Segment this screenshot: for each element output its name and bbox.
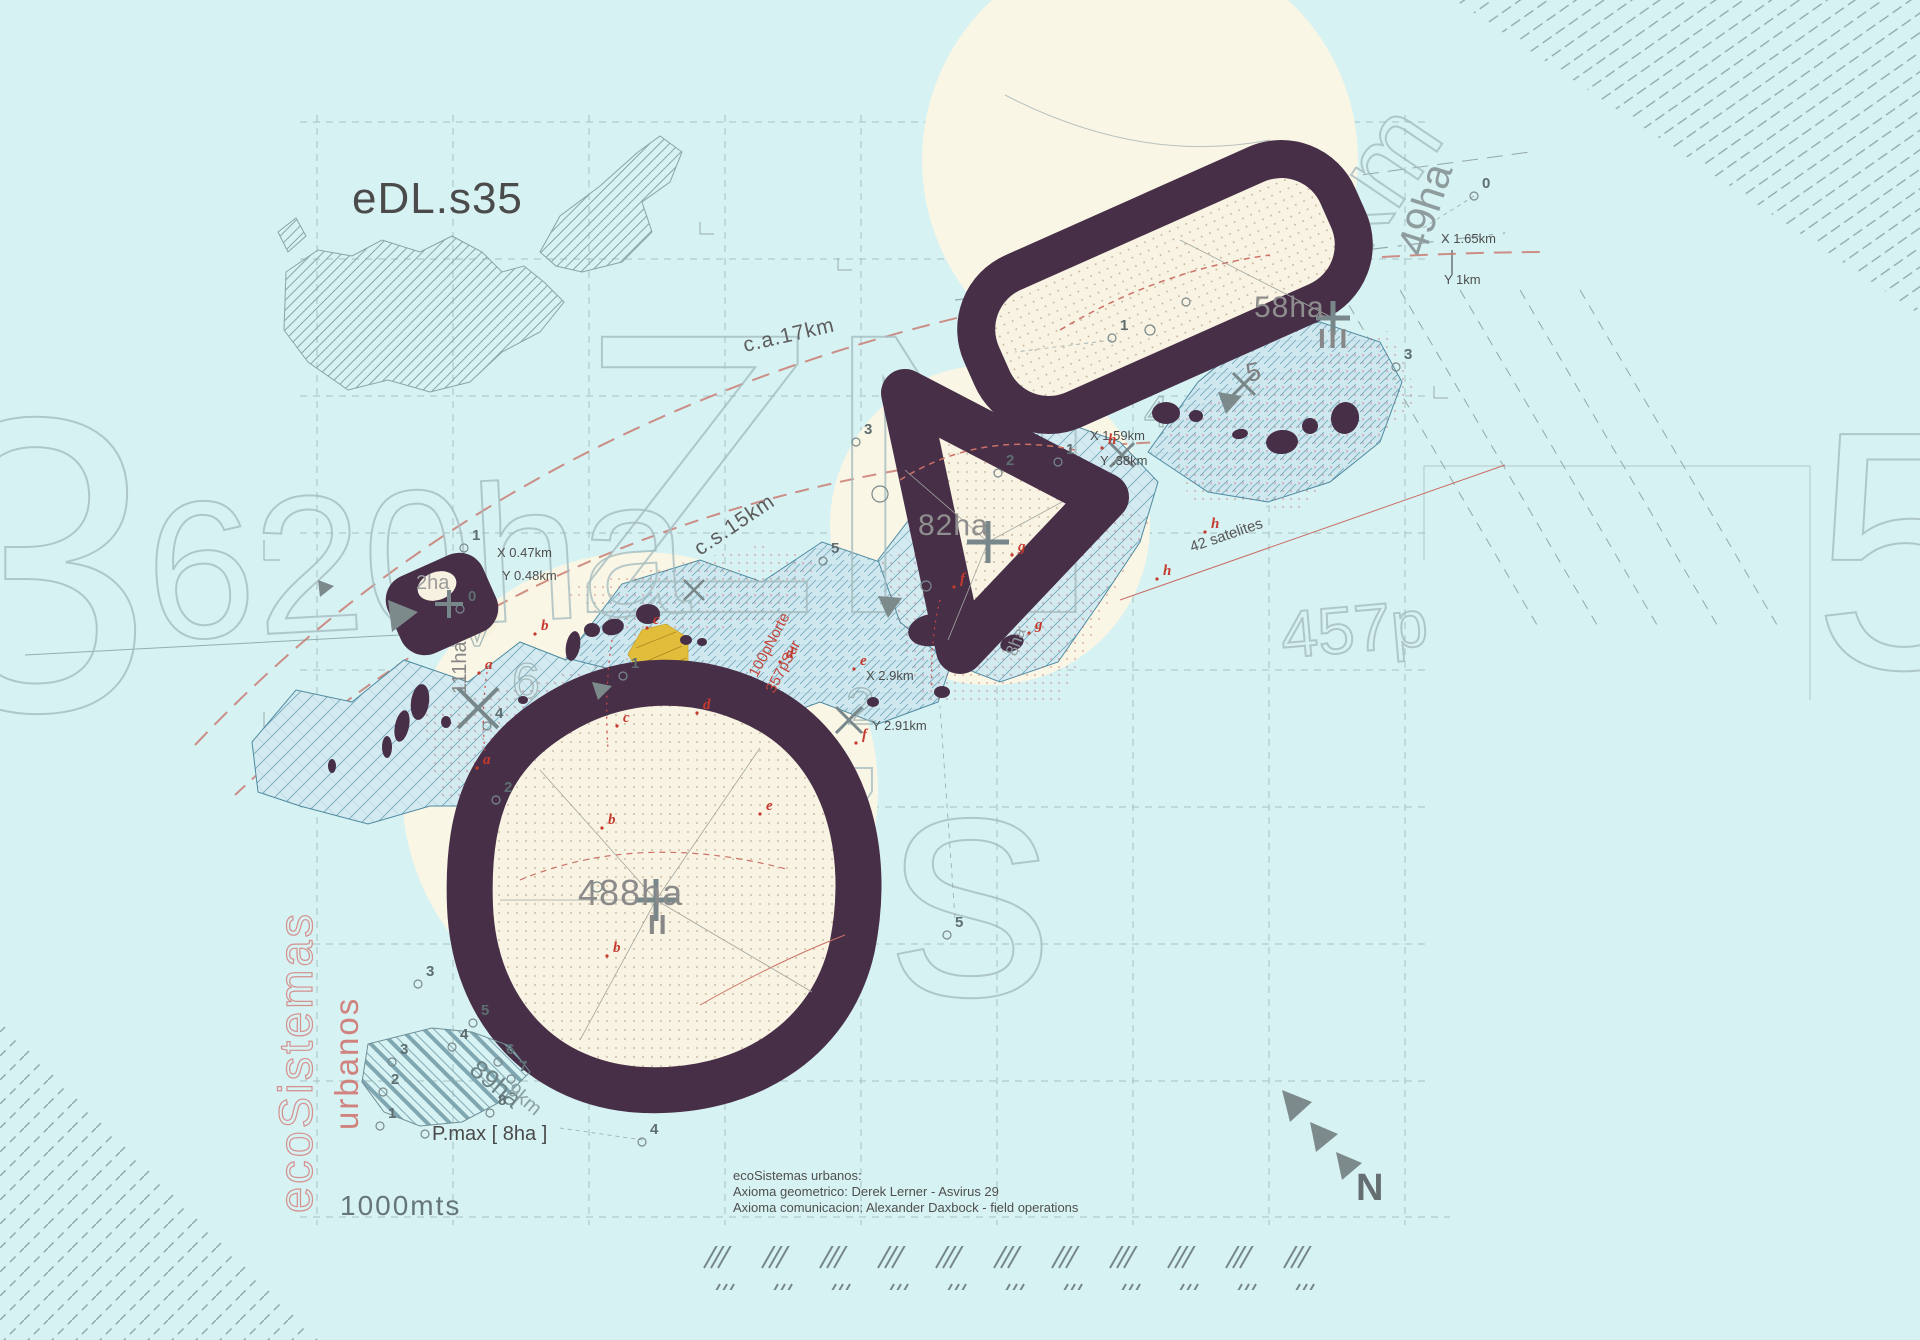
red-letter-dot (758, 812, 761, 815)
scale-label: 1000mts (340, 1190, 461, 1221)
zone-label-111ha: 111ha (449, 640, 471, 694)
red-letter: g (1034, 617, 1043, 633)
ghost-text: 3 (0, 331, 154, 800)
zone-label-82ha: 82ha (918, 509, 989, 542)
point-marker-label: 5 (481, 1002, 489, 1019)
zone-roman-58ha: III (1318, 323, 1350, 354)
compass-north-label: N (1356, 1167, 1383, 1209)
point-marker-label: 4 (650, 1121, 659, 1138)
red-letter-dot (615, 724, 618, 727)
red-letter-dot (600, 826, 603, 829)
red-letter-dot (1155, 577, 1158, 580)
red-letter-dot (533, 632, 536, 635)
point-marker-label: 1 (1066, 441, 1074, 458)
map-canvas: ZN620ha37s457p0km56024IV (0, 0, 1920, 1340)
red-letter-dot (852, 667, 855, 670)
credits-line3: Axioma comunicacion: Alexander Daxbock -… (733, 1200, 1079, 1215)
pmax-label: P.max [ 8ha ] (432, 1123, 547, 1145)
satellites-label: 42 satelites (1188, 515, 1265, 556)
red-letter: c (623, 710, 630, 726)
point-marker-label: 6 (506, 1041, 514, 1058)
point-marker-label: 0 (1482, 175, 1490, 192)
compass-arrow-icon (1310, 1122, 1338, 1152)
point-marker-label: 8 (498, 1092, 506, 1109)
red-letter-dot (778, 660, 781, 663)
ghost-text: 457p (1278, 585, 1431, 672)
zone-label-58ha: 58ha (1254, 291, 1325, 324)
coordinate-label: X 0.47km (497, 545, 552, 560)
red-letter-dot (1203, 530, 1206, 533)
point-marker-label: 5 (955, 914, 963, 931)
red-letter-dot (645, 626, 648, 629)
point-marker-label: 3 (1404, 346, 1412, 363)
point-marker-label: 2 (1006, 452, 1014, 469)
zone-label-2ha: 2ha (416, 572, 450, 594)
point-marker-circle (469, 1019, 477, 1027)
red-letter-dot (854, 741, 857, 744)
pmax-marker-circle (421, 1130, 429, 1138)
point-marker-label: 1 (1120, 317, 1128, 334)
point-marker-label: 4 (460, 1026, 469, 1043)
red-letter-dot (695, 711, 698, 714)
coordinate-label: Y 0.48km (502, 568, 557, 583)
red-letter: h (1108, 432, 1116, 448)
coordinate-label: X 2.9km (866, 668, 914, 683)
red-letter-dot (1100, 446, 1103, 449)
map-artwork-edl-s35: ZN620ha37s457p0km56024IV (0, 0, 1920, 1340)
artwork-title: eDL.s35 (352, 174, 523, 223)
compass: N (1282, 1090, 1383, 1209)
top-right-hatch-field (1452, 0, 1920, 316)
red-letter-dot (605, 954, 608, 957)
red-letter: h (1211, 516, 1219, 532)
point-marker-circle (486, 1109, 494, 1117)
coordinate-label: X 1.65km (1441, 231, 1496, 246)
point-marker-circle (376, 1122, 384, 1130)
red-letter: g (1017, 539, 1026, 555)
red-letter-dot (1010, 553, 1013, 556)
red-letter: b (613, 940, 621, 956)
red-letter: h (1163, 563, 1171, 579)
eco-vertical-label: ecoSistemas (269, 911, 322, 1213)
red-letter: d (786, 646, 794, 662)
point-marker-label: 3 (400, 1041, 408, 1058)
point-marker-circle (414, 980, 422, 988)
red-letter-dot (952, 585, 955, 588)
ghost-text: 5 (1812, 361, 1920, 741)
red-letter-dot (1027, 631, 1030, 634)
coordinate-label: Y .38km (1100, 453, 1147, 468)
red-letter-dot (477, 671, 480, 674)
point-marker-label: 3 (864, 421, 872, 438)
coordinate-label: Y 1km (1444, 272, 1481, 287)
bottom-slash-strip (698, 1246, 1338, 1290)
red-letter: b (608, 812, 616, 828)
point-marker-label: 1 (472, 527, 480, 544)
red-letter: a (483, 752, 491, 768)
point-marker-label: 2 (391, 1071, 399, 1088)
coordinate-label: X 1.59km (1090, 428, 1145, 443)
red-letter: c (653, 612, 660, 628)
red-letter-dot (475, 766, 478, 769)
coordinate-label: Y 2.91km (872, 718, 927, 733)
point-marker-label: 3 (426, 963, 434, 980)
credits-line2: Axioma geometrico: Derek Lerner - Asviru… (733, 1184, 999, 1199)
point-marker-label: 5 (831, 540, 839, 557)
point-marker-label: 4 (495, 705, 504, 722)
point-marker-label: 1 (388, 1105, 396, 1122)
point-marker-label: 2 (504, 779, 512, 796)
zone-roman-488ha: II (648, 909, 670, 940)
point-marker-label: 1 (631, 655, 639, 672)
point-marker-label: 7 (519, 1058, 527, 1075)
point-marker-circle (638, 1138, 646, 1146)
red-letter: d (703, 697, 711, 713)
red-letter: e (860, 653, 867, 669)
credits-line1: ecoSistemas urbanos: (733, 1168, 862, 1183)
red-letter: b (541, 618, 549, 634)
zone-label-488ha: 488ha (578, 872, 683, 913)
red-letter: a (485, 657, 493, 673)
urbanos-vertical-label: urbanos (328, 997, 365, 1130)
point-marker-label: 0 (468, 588, 476, 605)
compass-arrow-icon (1282, 1090, 1312, 1122)
red-letter: e (766, 798, 773, 814)
